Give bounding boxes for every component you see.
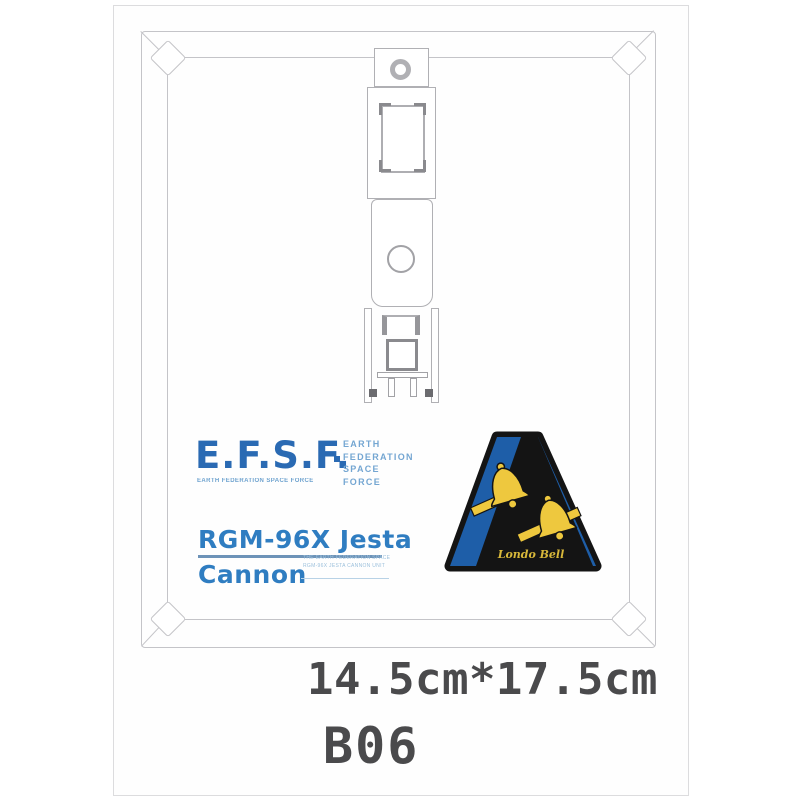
code-label: B06	[323, 717, 419, 775]
efsf-name-line: EARTH	[343, 438, 414, 451]
window-corner-mark	[414, 103, 426, 115]
model-name-line1: RGM-96X Jesta	[198, 525, 412, 554]
bar-leg	[388, 378, 395, 397]
clamp-bracket	[382, 315, 420, 335]
window-corner-mark	[379, 103, 391, 115]
middle-strip-hole	[387, 245, 415, 273]
fine-print-underline	[301, 578, 389, 579]
efsf-name-lines: EARTH FEDERATION SPACE FORCE	[343, 438, 414, 488]
window-corner-mark	[414, 160, 426, 172]
londo-bell-emblem: Londo Bell	[437, 429, 609, 577]
efsf-name-line: FEDERATION	[343, 451, 414, 464]
model-fine-print: THE EARTH FEDERATION SPACE FORCE RGM-96X…	[303, 554, 391, 570]
foot-pad	[425, 389, 433, 397]
efsf-acronym: E.F.S.F.	[195, 434, 351, 477]
efsf-name-line: SPACE	[343, 463, 414, 476]
efsf-bullet	[334, 456, 340, 462]
emblem-script-text: Londo Bell	[497, 548, 565, 561]
small-square-window	[386, 339, 418, 371]
decal-sheet-photo: E.F.S.F. EARTH FEDERATION SPACE FORCE EA…	[113, 5, 689, 796]
bottom-bar	[377, 372, 428, 378]
sheet-border-frame: E.F.S.F. EARTH FEDERATION SPACE FORCE EA…	[1, 1, 800, 800]
efsf-subtitle: EARTH FEDERATION SPACE FORCE	[197, 478, 335, 484]
size-label: 14.5cm*17.5cm	[307, 654, 658, 705]
foot-pad	[369, 389, 377, 397]
model-name-line2: Cannon	[198, 560, 307, 589]
product-photo-canvas: E.F.S.F. EARTH FEDERATION SPACE FORCE EA…	[0, 0, 800, 800]
model-fine-print-line1: THE EARTH FEDERATION SPACE FORCE	[303, 554, 391, 562]
tab-hole	[390, 59, 411, 80]
model-fine-print-line2: RGM-96X JESTA CANNON UNIT	[303, 562, 391, 570]
window-corner-mark	[379, 160, 391, 172]
bar-leg	[410, 378, 417, 397]
efsf-name-line: FORCE	[343, 476, 414, 489]
